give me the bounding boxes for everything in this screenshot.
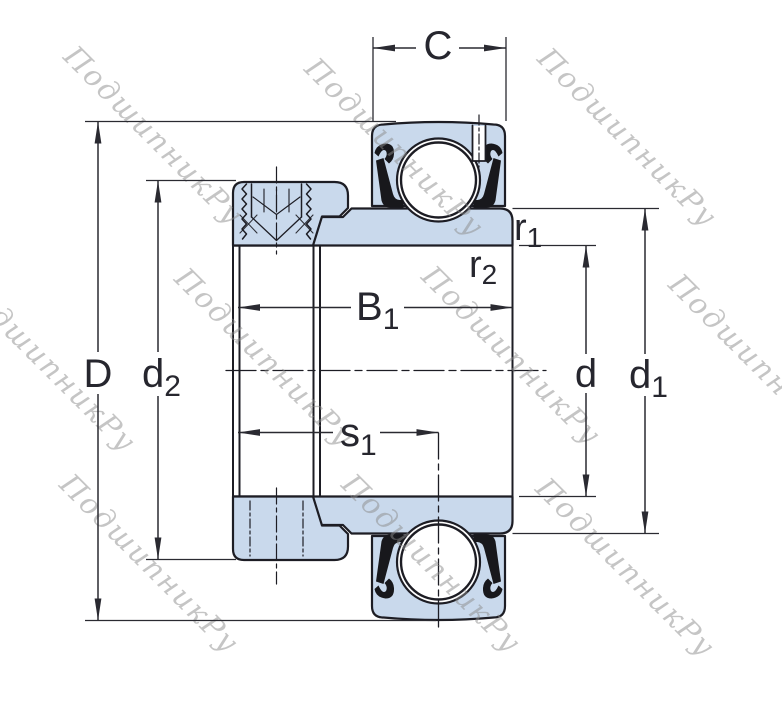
label-d: d [575, 352, 597, 396]
arrowhead [238, 429, 260, 436]
label-B1: B1 [356, 285, 399, 336]
arrowhead [155, 181, 162, 203]
arrowhead [95, 122, 102, 144]
watermark-text: ПодшипникРу [528, 470, 722, 664]
bearing-cross-section-figure: ПодшипникРу ПодшипникРу ПодшипникРу Подш… [0, 0, 782, 704]
arrowhead [95, 599, 102, 621]
arrowhead [417, 429, 439, 436]
label-d2: d2 [142, 352, 181, 403]
arrowhead [484, 45, 506, 52]
label-r1: r1 [514, 207, 542, 253]
label-C: C [424, 24, 453, 68]
watermark-text: ПодшипникРу [530, 40, 724, 234]
arrowhead [583, 246, 590, 268]
watermark-text: ПодшипникРу [52, 466, 246, 660]
watermark-text: ПодшипникРу [0, 265, 143, 459]
watermark-text: ПодшипникРу [661, 266, 782, 460]
label-D: D [84, 352, 113, 396]
arrowhead [491, 304, 513, 311]
watermark-text: ПодшипникРу [167, 260, 361, 454]
arrowhead [642, 512, 649, 534]
label-d1: d1 [629, 353, 668, 404]
arrowhead [583, 475, 590, 497]
watermark-text: ПодшипникРу [56, 38, 250, 232]
arrowhead [373, 45, 395, 52]
label-r2: r2 [469, 244, 497, 290]
label-s1: s1 [340, 411, 377, 462]
bearing-drawing-page: ПодшипникРу ПодшипникРу ПодшипникРу Подш… [0, 0, 782, 704]
arrowhead [642, 209, 649, 231]
